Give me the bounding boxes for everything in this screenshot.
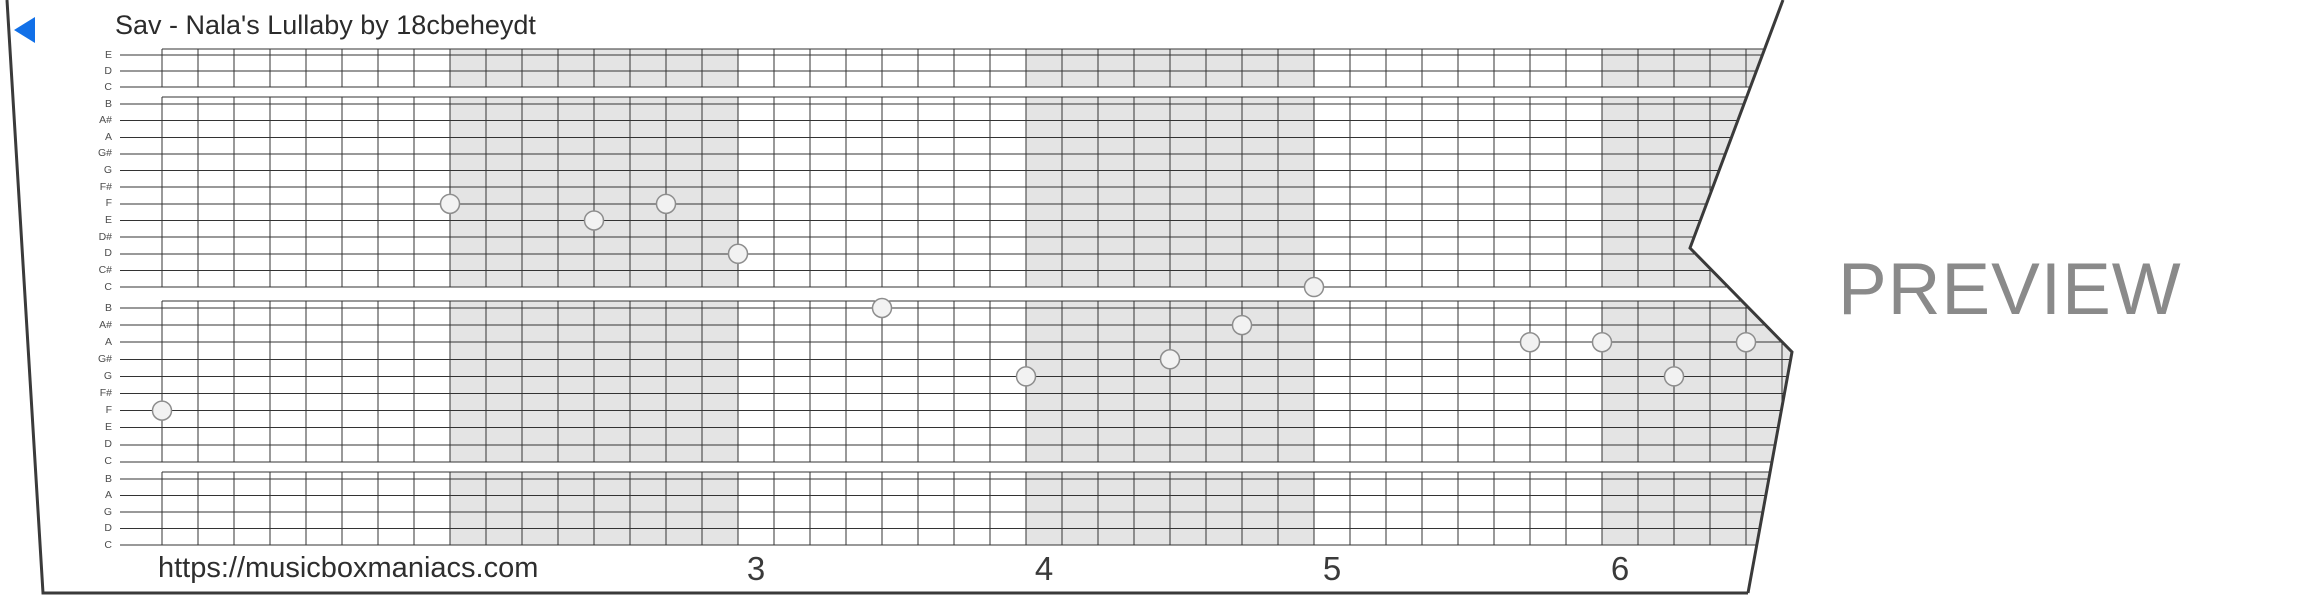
- note-circle[interactable]: [1161, 350, 1180, 369]
- note-label: C: [60, 281, 112, 294]
- music-strip-preview: Sav - Nala's Lullaby by 18cbeheydt EDCBA…: [0, 0, 2310, 597]
- note-circle[interactable]: [441, 194, 460, 213]
- note-circle[interactable]: [657, 194, 676, 213]
- note-circle[interactable]: [1305, 278, 1324, 297]
- note-label: A#: [60, 114, 112, 127]
- note-label: F#: [60, 387, 112, 400]
- measure-number: 3: [716, 551, 796, 587]
- note-circle[interactable]: [729, 244, 748, 263]
- note-label: B: [60, 473, 112, 486]
- note-label: E: [60, 421, 112, 434]
- note-label: C#: [60, 264, 112, 277]
- note-label: A#: [60, 319, 112, 332]
- note-circle[interactable]: [1665, 367, 1684, 386]
- grid-layer: [120, 49, 1920, 545]
- note-circle[interactable]: [585, 211, 604, 230]
- note-label: D: [60, 522, 112, 535]
- note-label: F: [60, 404, 112, 417]
- note-label: C: [60, 455, 112, 468]
- note-label: E: [60, 214, 112, 227]
- measure-number: 5: [1292, 551, 1372, 587]
- note-label: D#: [60, 231, 112, 244]
- site-url-link[interactable]: https://musicboxmaniacs.com: [158, 551, 538, 585]
- note-label: B: [60, 302, 112, 315]
- paper-left-bottom-edge: [7, 0, 1748, 593]
- note-circle[interactable]: [1737, 333, 1756, 352]
- note-label: G: [60, 506, 112, 519]
- note-label: F: [60, 197, 112, 210]
- note-label: G: [60, 370, 112, 383]
- note-label: A: [60, 336, 112, 349]
- note-circle[interactable]: [1521, 333, 1540, 352]
- note-label: C: [60, 539, 112, 552]
- note-label: B: [60, 98, 112, 111]
- note-label: A: [60, 131, 112, 144]
- note-label: D: [60, 65, 112, 78]
- note-circle[interactable]: [153, 401, 172, 420]
- page-title: Sav - Nala's Lullaby by 18cbeheydt: [115, 10, 536, 40]
- note-circle[interactable]: [1593, 333, 1612, 352]
- measure-number: 6: [1580, 551, 1660, 587]
- note-label: D: [60, 247, 112, 260]
- note-circle[interactable]: [1017, 367, 1036, 386]
- note-label: D: [60, 438, 112, 451]
- note-label: A: [60, 489, 112, 502]
- note-label: G: [60, 164, 112, 177]
- measure-number: 4: [1004, 551, 1084, 587]
- note-label: E: [60, 49, 112, 62]
- note-circle[interactable]: [1233, 316, 1252, 335]
- note-label: C: [60, 81, 112, 94]
- note-label: G#: [60, 147, 112, 160]
- play-icon[interactable]: [14, 17, 35, 43]
- note-label: G#: [60, 353, 112, 366]
- note-label: F#: [60, 181, 112, 194]
- note-circle[interactable]: [873, 299, 892, 318]
- preview-watermark: PREVIEW: [1838, 250, 2182, 330]
